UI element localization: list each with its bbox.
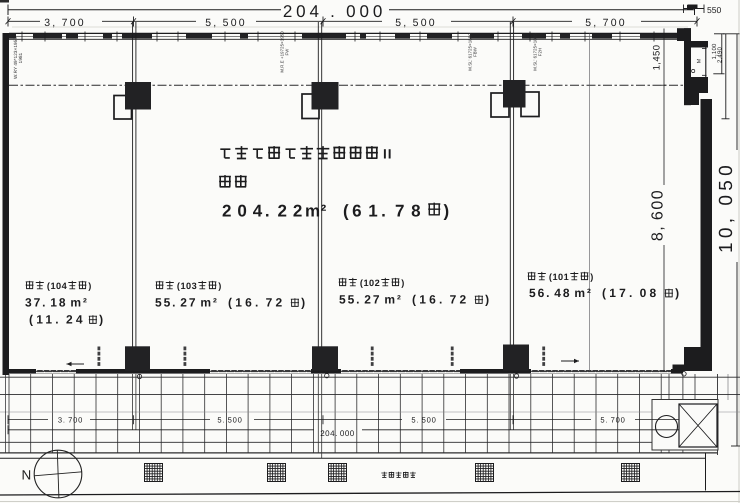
svg-text:): )	[401, 278, 405, 288]
svg-text:(16. 72: (16. 72	[412, 293, 469, 307]
svg-text:): )	[675, 286, 679, 300]
svg-text:(103: (103	[177, 281, 197, 291]
svg-text:2,490: 2,490	[716, 47, 723, 63]
svg-text:II: II	[383, 147, 393, 162]
svg-text:): )	[218, 281, 222, 291]
svg-text:): )	[88, 281, 92, 291]
svg-text:(104: (104	[47, 281, 68, 291]
svg-text:(101: (101	[549, 272, 569, 282]
svg-text:8, 600: 8, 600	[650, 189, 667, 241]
svg-text:): )	[485, 293, 489, 307]
svg-text:204. 000: 204. 000	[320, 429, 355, 438]
svg-text:5, 700: 5, 700	[585, 17, 627, 29]
svg-text:): )	[590, 272, 594, 282]
svg-text:M: M	[697, 59, 703, 63]
svg-text:5. 500: 5. 500	[411, 415, 436, 424]
svg-text:): )	[301, 296, 305, 310]
svg-text:3. 700: 3. 700	[58, 415, 83, 424]
svg-text:FW: FW	[285, 48, 290, 56]
svg-text:1,450: 1,450	[652, 45, 663, 71]
svg-text:N: N	[22, 468, 32, 483]
svg-text:5. 700: 5. 700	[600, 415, 625, 424]
svg-text:F2H: F2H	[538, 48, 543, 56]
svg-text:): )	[444, 202, 450, 221]
svg-text:(16. 72: (16. 72	[228, 296, 285, 310]
svg-text:3, 700: 3, 700	[44, 17, 86, 29]
svg-text:5, 500: 5, 500	[205, 17, 247, 29]
svg-text:550: 550	[707, 5, 722, 15]
svg-text:(17. 08: (17. 08	[602, 286, 659, 300]
svg-text:56. 48 m²: 56. 48 m²	[529, 286, 593, 300]
svg-text:1981: 1981	[18, 52, 23, 63]
svg-text:10, 050: 10, 050	[716, 161, 737, 253]
svg-text:204 . 000: 204 . 000	[283, 2, 386, 21]
svg-text:(11. 24: (11. 24	[29, 313, 86, 327]
svg-text:FBW: FBW	[473, 46, 478, 57]
svg-text:): )	[99, 313, 103, 327]
svg-text:( 6 1 . 7 8: ( 6 1 . 7 8	[343, 202, 422, 221]
svg-text:55. 27 m²: 55. 27 m²	[339, 293, 403, 307]
svg-text:5, 500: 5, 500	[395, 17, 437, 29]
svg-text:(102: (102	[360, 278, 380, 288]
svg-text:5. 500: 5. 500	[217, 415, 242, 424]
svg-text:55. 27 m²: 55. 27 m²	[155, 296, 219, 310]
svg-text:2 0 4 . 2 2 m²: 2 0 4 . 2 2 m²	[222, 202, 327, 221]
svg-text:37. 18 m²: 37. 18 m²	[25, 296, 89, 310]
